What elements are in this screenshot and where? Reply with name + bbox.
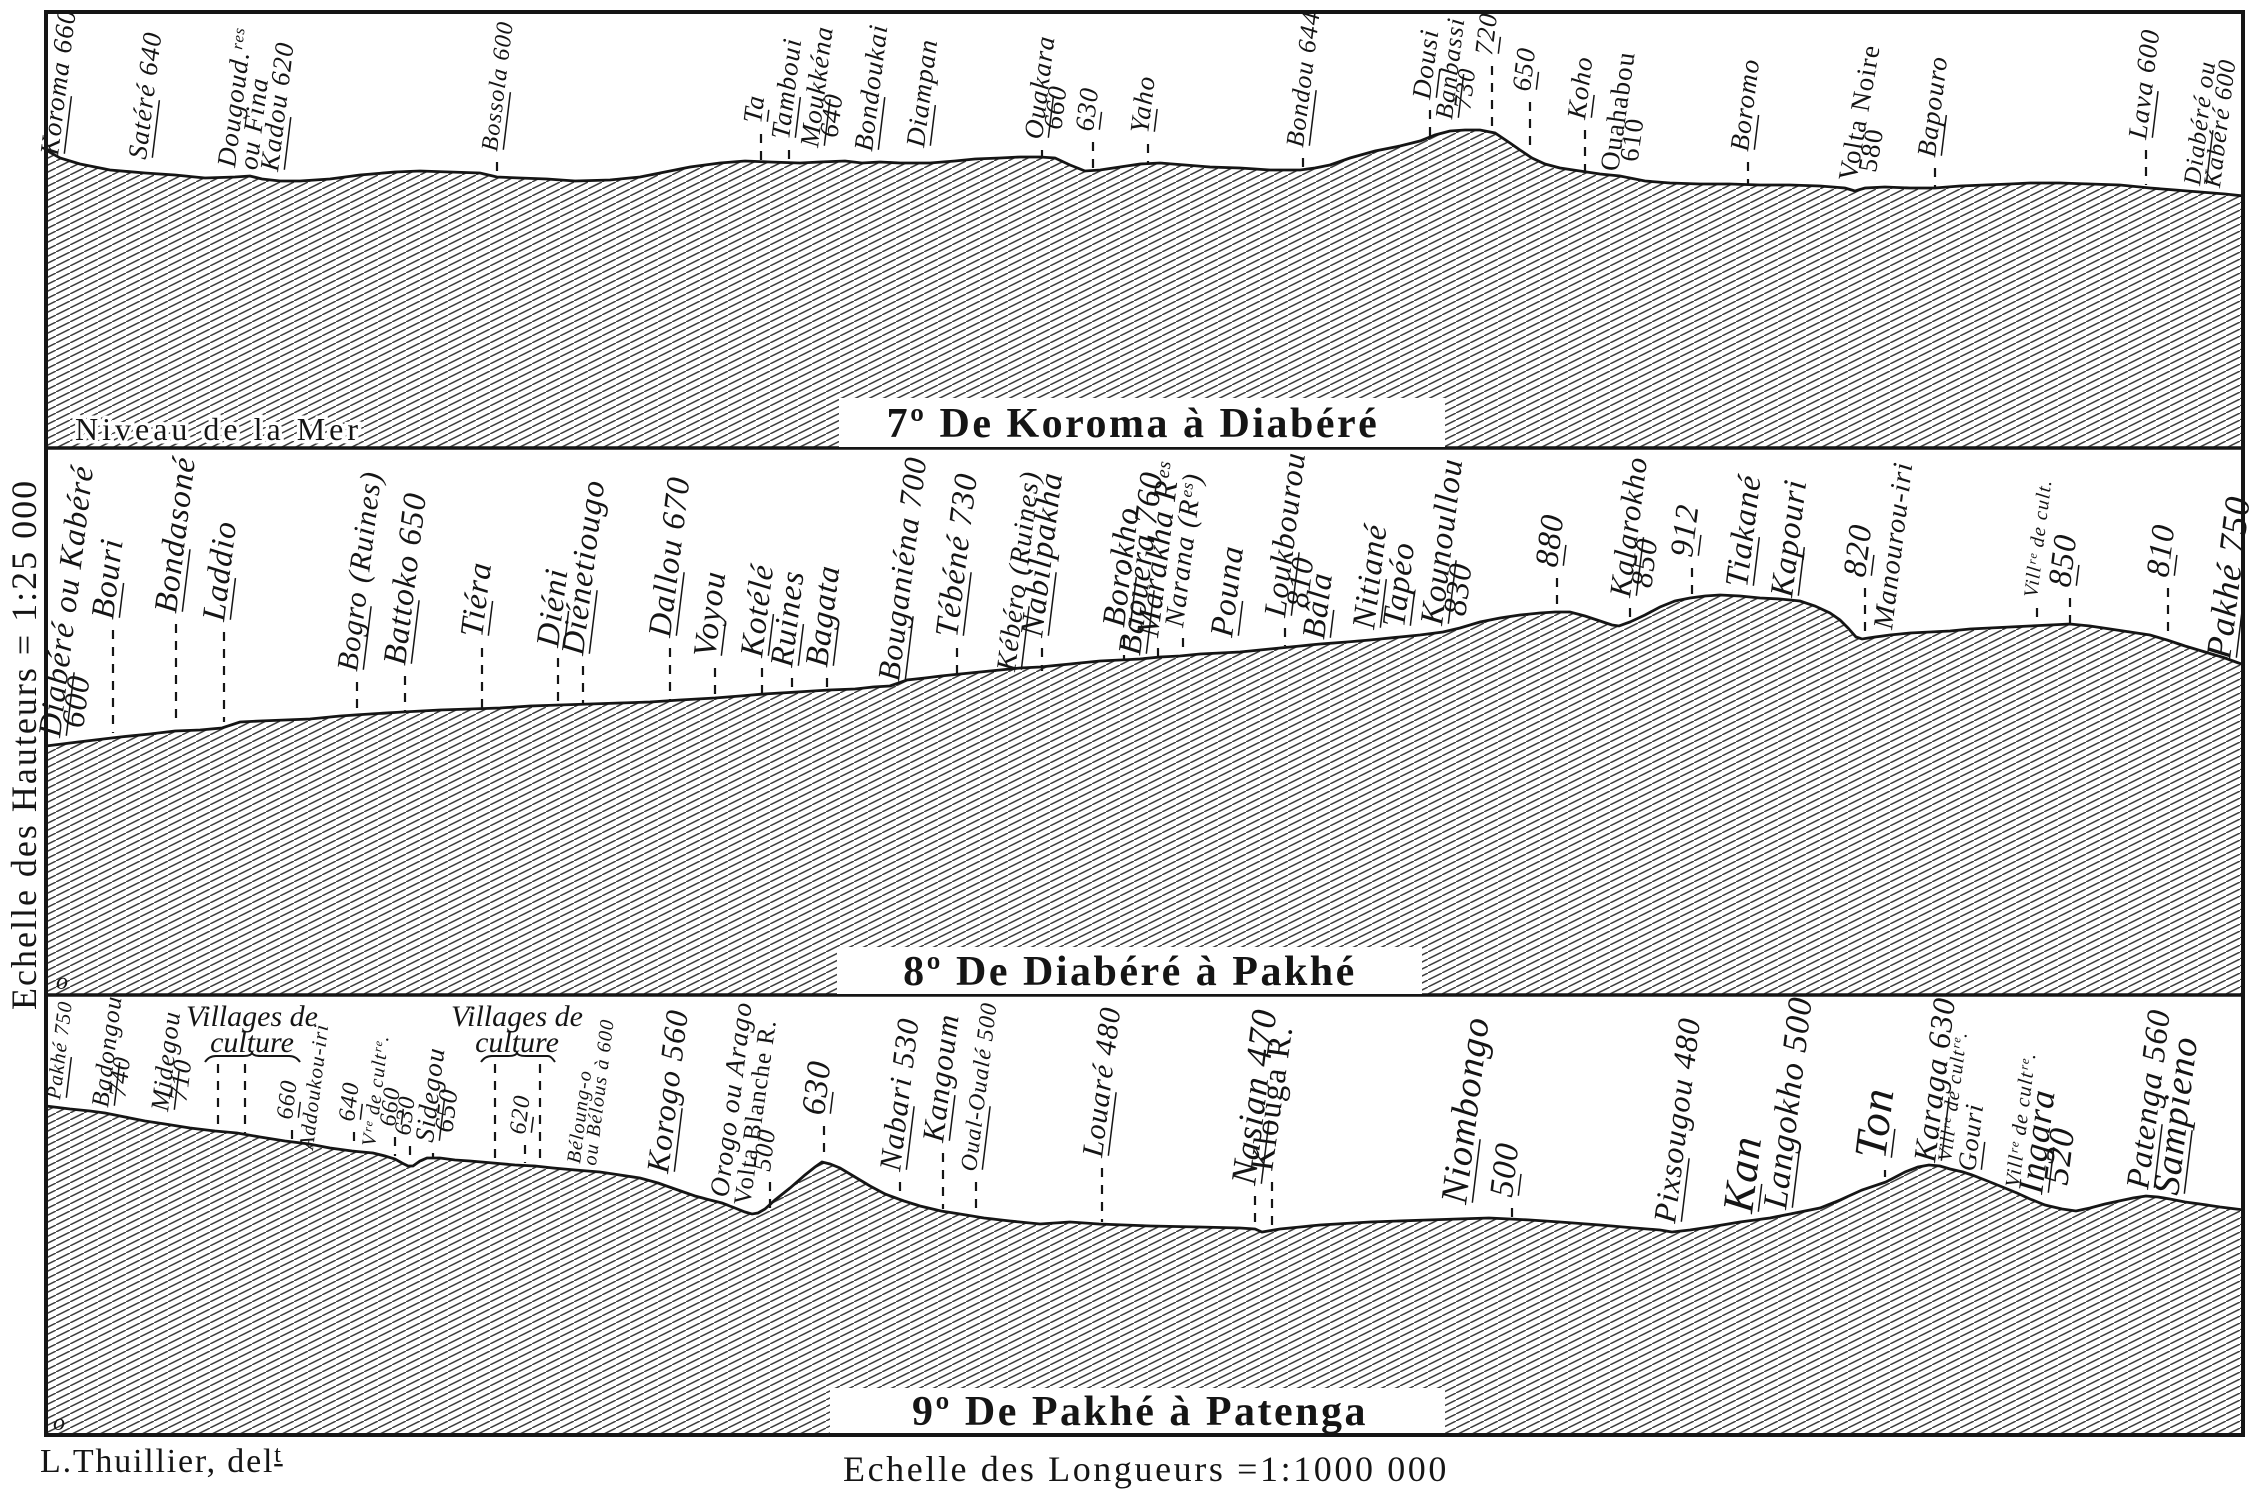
svg-text:740: 740: [104, 1055, 136, 1099]
svg-text:500: 500: [747, 1127, 781, 1173]
svg-text:880: 880: [1529, 512, 1571, 569]
svg-text:600: 600: [56, 673, 98, 730]
svg-text:650: 650: [429, 1087, 464, 1134]
svg-text:Echelle des Longueurs =1:1000: Echelle des Longueurs =1:1000 000: [843, 1449, 1449, 1489]
svg-text:640: 640: [814, 92, 849, 139]
svg-text:7º De Koroma à Diabéré: 7º De Koroma à Diabéré: [887, 401, 1380, 447]
svg-text:L.Thuillier, delt: L.Thuillier, delt: [40, 1442, 283, 1480]
svg-text:650: 650: [1506, 45, 1541, 92]
svg-text:660: 660: [1038, 84, 1073, 131]
svg-text:630: 630: [1069, 85, 1104, 132]
svg-text:o: o: [53, 1410, 65, 1436]
svg-text:710: 710: [164, 1057, 198, 1103]
svg-text:730: 730: [1448, 66, 1481, 111]
svg-text:630: 630: [795, 1058, 838, 1117]
svg-text:850: 850: [2042, 532, 2084, 589]
svg-text:8º De Diabéré à Pakhé: 8º De Diabéré à Pakhé: [903, 949, 1357, 995]
svg-text:520: 520: [2036, 1125, 2083, 1187]
svg-text:810: 810: [2140, 522, 2182, 579]
svg-text:Ton: Ton: [1844, 1085, 1903, 1162]
svg-text:Echelle des Hauteurs = 1:25 00: Echelle des Hauteurs = 1:25 000: [4, 479, 44, 1010]
svg-text:830: 830: [1438, 561, 1480, 618]
svg-text:850: 850: [1625, 536, 1665, 590]
svg-text:Niveau de la Mer: Niveau de la Mer: [75, 411, 362, 447]
svg-text:610: 610: [1614, 116, 1650, 164]
svg-text:9º De Pakhé à Patenga: 9º De Pakhé à Patenga: [912, 1389, 1368, 1435]
svg-text:500: 500: [1483, 1140, 1526, 1199]
svg-text:o: o: [56, 969, 68, 995]
svg-text:Ta: Ta: [737, 93, 770, 125]
svg-text:820: 820: [1837, 522, 1879, 579]
svg-text:912: 912: [1664, 502, 1706, 559]
